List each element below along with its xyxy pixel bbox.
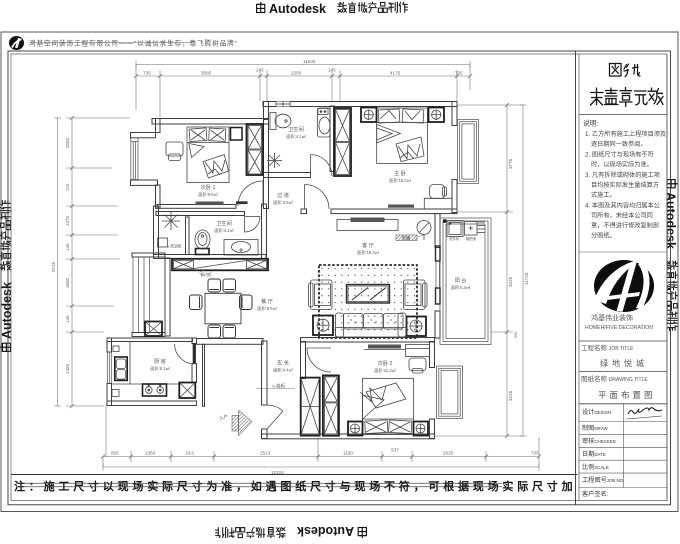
svg-text:2650: 2650 — [65, 137, 70, 148]
svg-text:面积:4.2㎡: 面积:4.2㎡ — [214, 227, 234, 234]
svg-text:日期DATE: 日期DATE — [582, 450, 606, 458]
svg-text:HOMEHIFIVE DECORATION: HOMEHIFIVE DECORATION — [585, 325, 653, 331]
svg-text:玄 关: 玄 关 — [277, 359, 289, 367]
svg-text:4525: 4525 — [508, 276, 513, 287]
svg-text:客 厅: 客 厅 — [362, 241, 374, 249]
svg-text:面积:6.1㎡: 面积:6.1㎡ — [150, 365, 170, 372]
svg-text:过 道: 过 道 — [277, 191, 289, 199]
svg-text:审核CHECKED: 审核CHECKED — [582, 437, 616, 445]
svg-text:绿地悦城: 绿地悦城 — [600, 358, 648, 368]
svg-text:1420: 1420 — [65, 363, 70, 374]
svg-text:面积:4.4㎡: 面积:4.4㎡ — [273, 367, 293, 374]
svg-text:面积:9.6㎡: 面积:9.6㎡ — [198, 191, 218, 198]
svg-text:说明:: 说明: — [583, 119, 599, 128]
svg-text:设计DESIGN: 设计DESIGN — [582, 408, 611, 416]
svg-text:次卧 1: 次卧 1 — [201, 183, 216, 191]
svg-text:1375: 1375 — [65, 215, 70, 226]
svg-text:面积:3.6㎡: 面积:3.6㎡ — [273, 199, 293, 206]
svg-text:面积:4.1㎡: 面积:4.1㎡ — [286, 133, 306, 140]
svg-text:餐 厅: 餐 厅 — [261, 297, 273, 305]
svg-text:卫生间: 卫生间 — [216, 219, 232, 227]
svg-text:3225: 3225 — [508, 390, 513, 401]
svg-text:拖把池: 拖把池 — [466, 236, 477, 241]
svg-text:4. 本图及其内容均归属本公: 4. 本图及其内容均归属本公 — [585, 202, 660, 210]
svg-text:958: 958 — [111, 451, 119, 456]
svg-text:面积:11.3㎡: 面积:11.3㎡ — [374, 367, 396, 374]
svg-text:11540: 11540 — [303, 59, 316, 64]
svg-text:2250: 2250 — [291, 71, 302, 76]
svg-text:215: 215 — [65, 183, 70, 191]
svg-text:目均按实际发生量结算方: 目均按实际发生量结算方 — [591, 181, 659, 189]
svg-text:司所有，未经本公司同: 司所有，未经本公司同 — [591, 212, 653, 220]
svg-text:145: 145 — [328, 68, 336, 73]
svg-text:鸿基伟业装饰: 鸿基伟业装饰 — [591, 313, 633, 322]
svg-text:客户签名:: 客户签名: — [582, 490, 609, 498]
svg-text:2513: 2513 — [260, 451, 271, 456]
svg-text:537: 537 — [391, 448, 399, 453]
svg-text:面积:8.5㎡: 面积:8.5㎡ — [257, 305, 277, 312]
svg-text:735: 735 — [531, 451, 539, 456]
svg-text:平面布置图: 平面布置图 — [598, 390, 656, 400]
svg-text:9745: 9745 — [51, 261, 56, 272]
svg-text:比例SCALE: 比例SCALE — [582, 463, 609, 471]
svg-text:面积:15.2㎡: 面积:15.2㎡ — [389, 177, 412, 184]
svg-text:1354: 1354 — [145, 451, 156, 456]
svg-text:次卧 2: 次卧 2 — [378, 359, 393, 367]
svg-text:3775: 3775 — [508, 158, 513, 169]
svg-text:式施工。: 式施工。 — [591, 191, 616, 199]
svg-text:245: 245 — [256, 68, 264, 73]
svg-text:厨 房: 厨 房 — [154, 357, 166, 365]
svg-text:595: 595 — [514, 332, 518, 338]
svg-text:913: 913 — [186, 451, 194, 456]
svg-text:餐边柜: 餐边柜 — [200, 271, 212, 277]
svg-text:3. 凡有拆除或砌体的施工项: 3. 凡有拆除或砌体的施工项 — [585, 171, 660, 179]
svg-text:1. 乙方所有施工上程项目须及: 1. 乙方所有施工上程项目须及 — [585, 130, 666, 138]
svg-text:主 卧: 主 卧 — [394, 169, 406, 177]
svg-text:鸿基空间装饰工程有限公司——"以诚信求生存，靠飞腾树品牌": 鸿基空间装饰工程有限公司——"以诚信求生存，靠飞腾树品牌" — [29, 39, 238, 48]
svg-text:12334: 12334 — [271, 470, 284, 475]
svg-text:面积:5.4㎡: 面积:5.4㎡ — [451, 284, 471, 291]
svg-text:735: 735 — [143, 71, 151, 76]
svg-text:11725: 11725 — [524, 272, 529, 285]
svg-text:1130: 1130 — [343, 451, 353, 456]
svg-text:3585: 3585 — [201, 71, 212, 76]
svg-text:1650: 1650 — [65, 277, 70, 288]
svg-text:2925: 2925 — [443, 451, 454, 456]
svg-text:145: 145 — [65, 243, 70, 251]
svg-text:阳 台: 阳 台 — [455, 276, 467, 284]
svg-text:735: 735 — [455, 71, 463, 76]
svg-text:注：施工尺寸以现场实际尺寸为准，如遇图纸尺寸与现场不符，可根: 注：施工尺寸以现场实际尺寸为准，如遇图纸尺寸与现场不符，可根据现场实际尺寸加以调… — [14, 479, 636, 493]
svg-text:逐日期同一致参阅。: 逐日期同一致参阅。 — [591, 140, 647, 148]
svg-text:洗衣机: 洗衣机 — [449, 236, 460, 241]
svg-text:时，以现场实际为准。: 时，以现场实际为准。 — [591, 161, 653, 169]
svg-text:意，不得进行修改复制部: 意，不得进行修改复制部 — [591, 222, 659, 230]
svg-text:卫生间: 卫生间 — [288, 125, 304, 133]
svg-text:2. 图纸尺寸与现场有不符: 2. 图纸尺寸与现场有不符 — [585, 151, 654, 159]
svg-text:空调: 空调 — [402, 235, 410, 241]
svg-text:面积:19.4㎡: 面积:19.4㎡ — [357, 249, 380, 256]
svg-text:145: 145 — [65, 315, 70, 323]
svg-text:工程图号JOB NO.: 工程图号JOB NO. — [582, 476, 624, 484]
svg-text:A-洗衣机: A-洗衣机 — [167, 244, 182, 249]
svg-text:分图纸。: 分图纸。 — [591, 232, 616, 240]
svg-text:制图DRAW: 制图DRAW — [582, 424, 608, 432]
svg-text:4175: 4175 — [390, 71, 401, 76]
